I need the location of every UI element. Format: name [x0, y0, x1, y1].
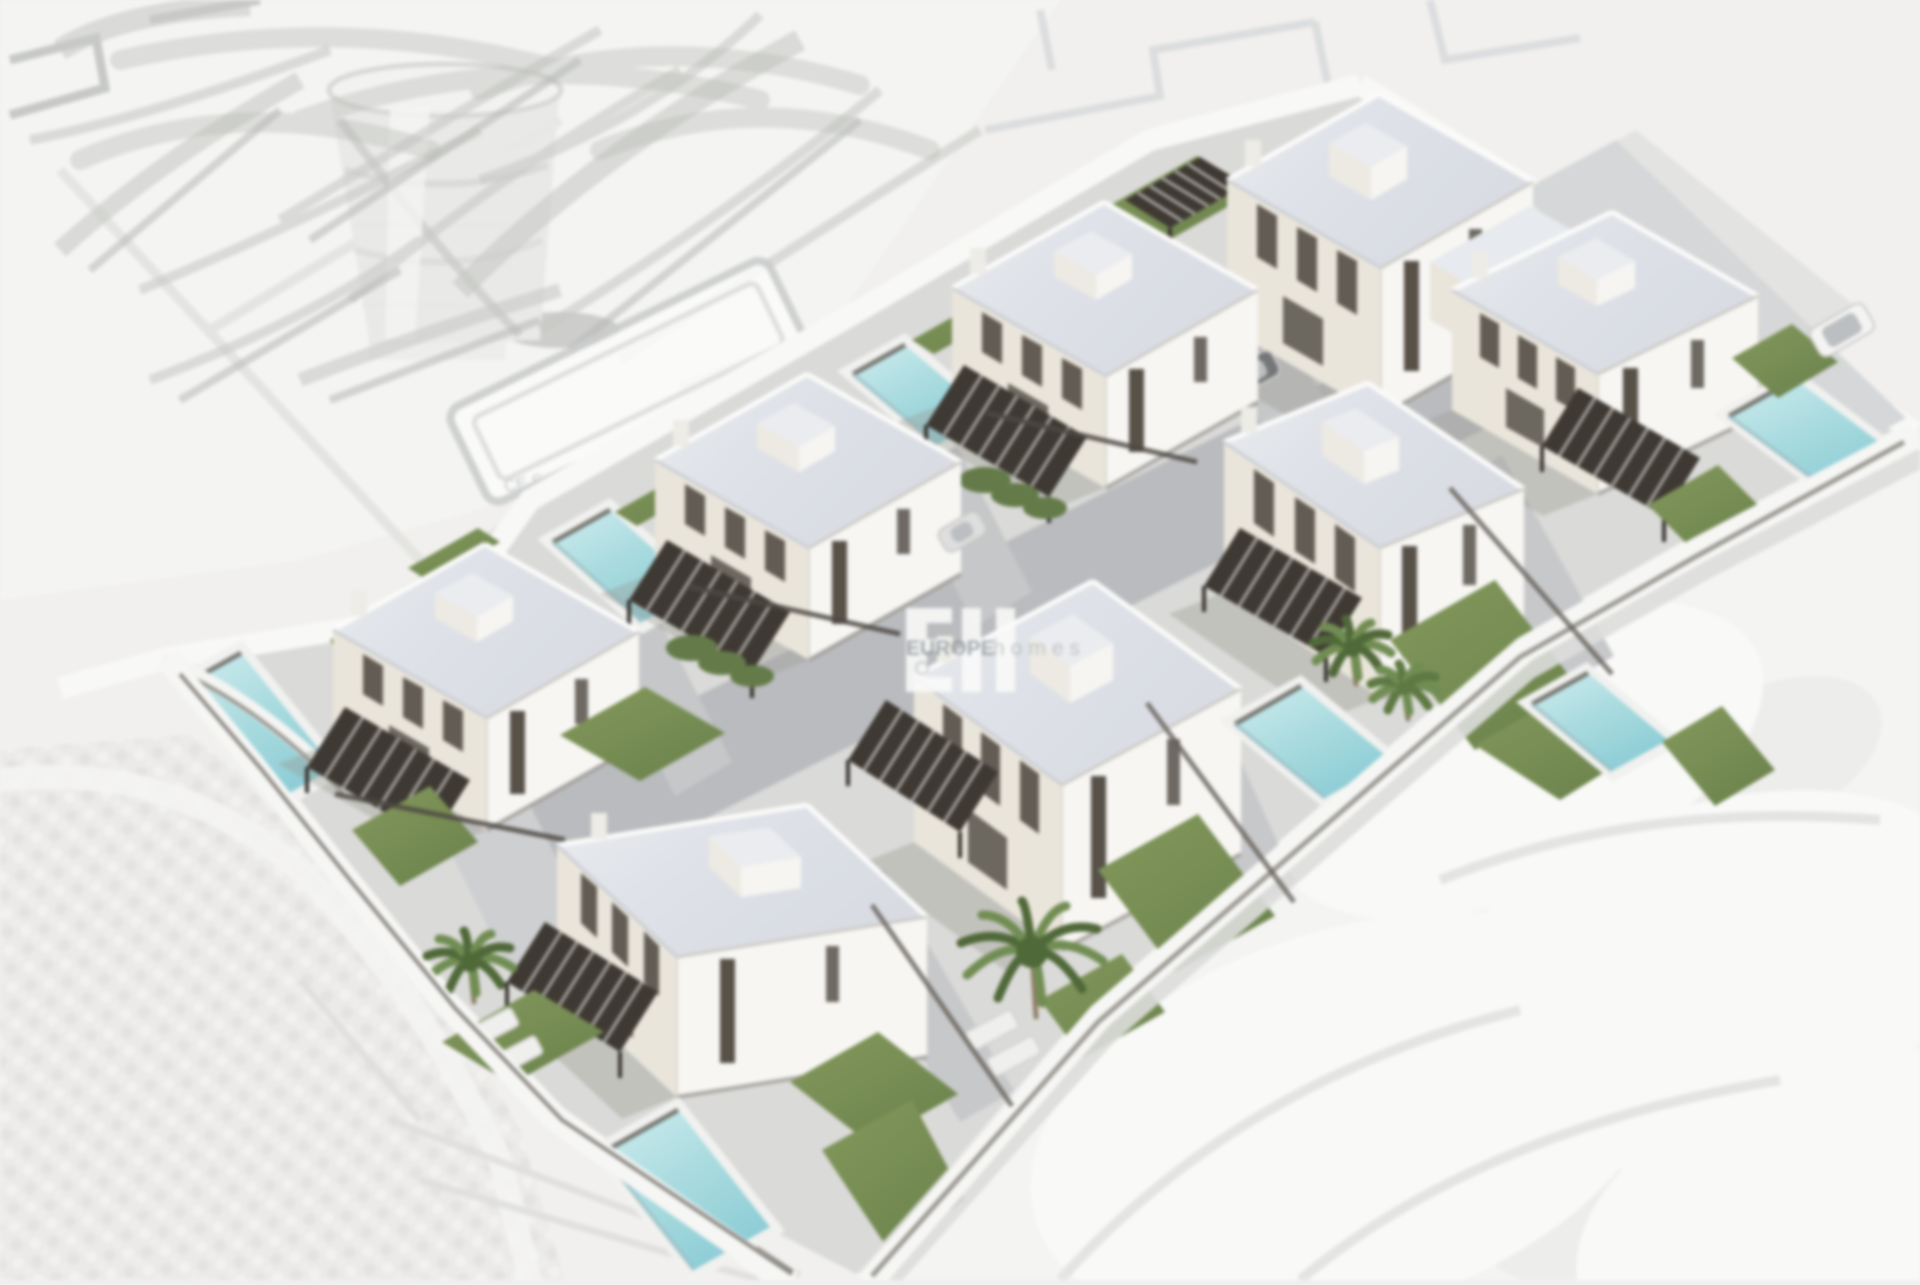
svg-text:homes: homes	[993, 637, 1086, 660]
svg-text:EUROPE: EUROPE	[906, 637, 995, 660]
